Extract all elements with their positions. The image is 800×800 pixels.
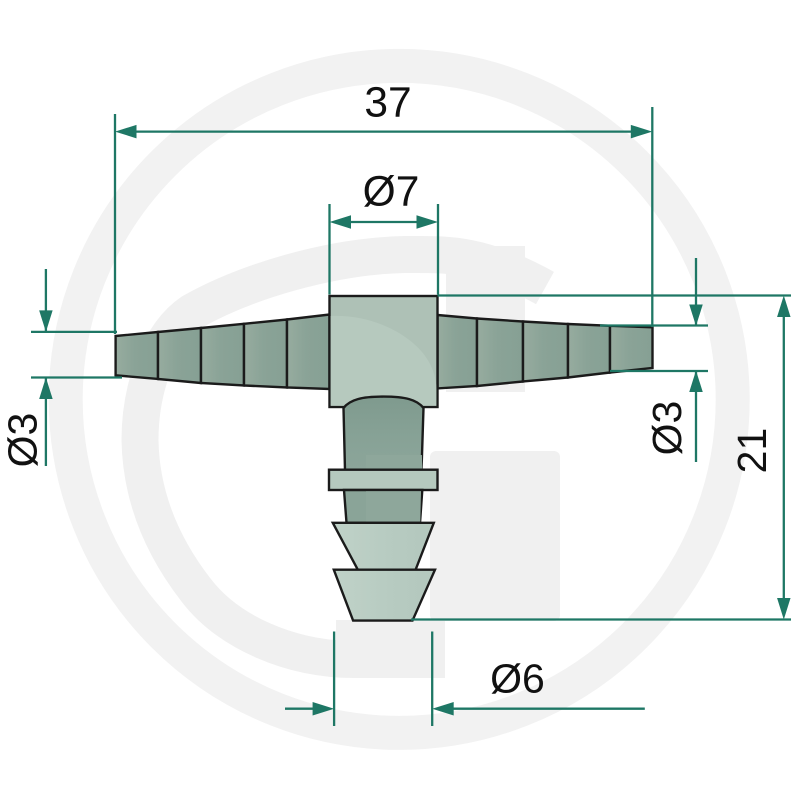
svg-text:Ø6: Ø6: [490, 656, 545, 702]
svg-text:Ø3: Ø3: [0, 413, 46, 468]
svg-text:21: 21: [729, 428, 775, 474]
svg-text:Ø7: Ø7: [363, 169, 420, 216]
svg-text:37: 37: [364, 80, 411, 127]
svg-text:Ø3: Ø3: [644, 401, 690, 456]
